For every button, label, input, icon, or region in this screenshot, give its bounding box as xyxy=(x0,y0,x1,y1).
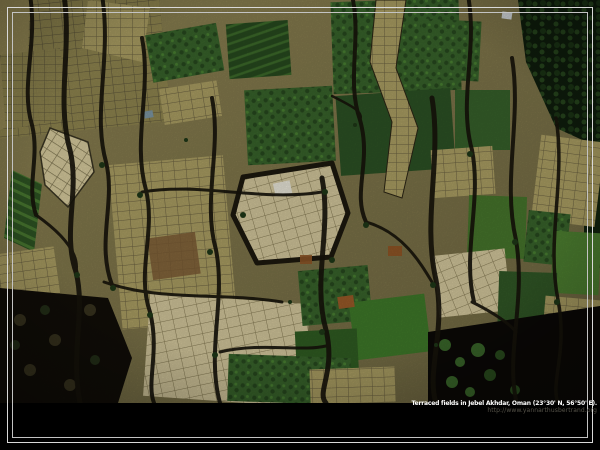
photo-caption: Terraced fields in Jebel Akhdar, Oman (2… xyxy=(412,401,597,414)
vignette-overlay xyxy=(0,0,600,403)
caption-url: http://www.yannarthusbertrand.org xyxy=(412,408,597,414)
aerial-terraced-fields-photo xyxy=(0,0,600,403)
wallpaper-stage: Terraced fields in Jebel Akhdar, Oman (2… xyxy=(0,0,600,450)
